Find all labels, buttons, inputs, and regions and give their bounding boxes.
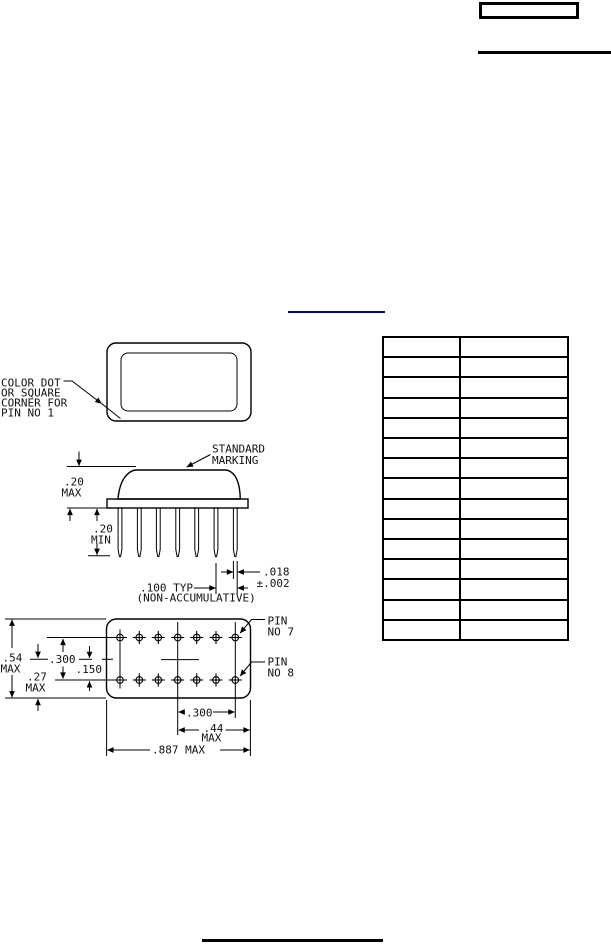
package-bottom-outline bbox=[107, 619, 251, 698]
dim-half-row-spacing: .150 bbox=[76, 663, 103, 676]
pin8-leader-line bbox=[240, 662, 265, 676]
package-base-flange bbox=[107, 499, 248, 508]
package-body bbox=[118, 470, 240, 499]
package-bottom-view: .54 MAX .27 MAX .300 .150 .300 .44 MAX .… bbox=[1, 615, 295, 757]
package-top-view: COLOR DOT OR SQUARE CORNER FOR PIN NO 1 bbox=[1, 343, 251, 421]
side-view-leads bbox=[118, 508, 237, 557]
datasheet-page: COLOR DOT OR SQUARE CORNER FOR PIN NO 1 bbox=[0, 0, 611, 946]
package-lid-inner bbox=[121, 353, 237, 411]
marking-label-line2: MARKING bbox=[212, 454, 258, 467]
dim-overall-height-qualifier: MAX bbox=[1, 663, 21, 676]
dim-lead-length-qualifier: MIN bbox=[91, 534, 111, 547]
package-side-view: STANDARD MARKING .20 MAX .20 MIN .018 ±.… bbox=[62, 443, 290, 605]
bottom-view-pins bbox=[117, 631, 242, 687]
dim-row-spacing: .300 bbox=[49, 653, 76, 666]
dim-overall-length: .887 MAX bbox=[152, 744, 205, 757]
marking-leader-line bbox=[187, 455, 211, 468]
dim-lead-dia-tolerance: ±.002 bbox=[257, 577, 290, 590]
dim-body-height-qualifier: MAX bbox=[62, 487, 82, 500]
dim-pin-span: .300 bbox=[186, 707, 213, 720]
pin7-label-line2: NO 7 bbox=[268, 626, 295, 639]
pin8-label-line2: NO 8 bbox=[268, 667, 295, 680]
pin1-note-line4: PIN NO 1 bbox=[1, 407, 54, 420]
bottom-view-dimension-lines bbox=[12, 620, 265, 751]
pin7-leader-line bbox=[240, 620, 265, 634]
pin1-leader-line bbox=[64, 381, 102, 404]
dim-pitch-note: (NON-ACCUMULATIVE) bbox=[137, 592, 256, 605]
package-lid-outline bbox=[107, 343, 251, 421]
package-drawing: COLOR DOT OR SQUARE CORNER FOR PIN NO 1 bbox=[0, 0, 611, 946]
pin1-leader-tail bbox=[102, 404, 121, 419]
dim-half-height-qualifier: MAX bbox=[26, 682, 46, 695]
